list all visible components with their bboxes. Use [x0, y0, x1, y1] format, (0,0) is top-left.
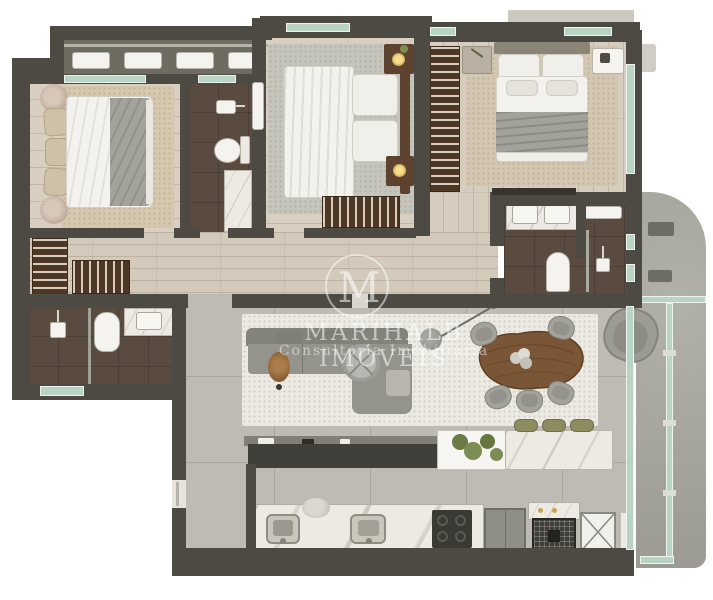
window-icon: [286, 23, 350, 32]
window-icon: [198, 75, 236, 83]
flower-centerpiece-icon: [508, 348, 534, 370]
cooktop-icon: [432, 510, 472, 548]
wall: [28, 228, 144, 238]
window-icon: [626, 234, 635, 250]
bed-2: [284, 66, 354, 198]
kitchen-island: [505, 430, 613, 470]
bed-3-foot: [496, 152, 588, 162]
herb-plant-icon: [464, 442, 482, 460]
bed-3-headboard: [494, 42, 590, 54]
wall-shelf: [252, 82, 264, 130]
service-shaft-icon: [580, 512, 616, 552]
bar-stool-icon: [542, 419, 566, 432]
door-leaf: [176, 482, 179, 506]
railing-post: [663, 350, 676, 356]
glass-partition: [88, 308, 91, 386]
side-stool-icon: [268, 352, 290, 382]
window-icon: [626, 264, 635, 282]
pouf-icon: [40, 196, 68, 224]
exterior-ledge: [508, 10, 634, 22]
glass-railing: [640, 556, 674, 564]
lamp-icon: [392, 53, 405, 66]
door-opening: [188, 294, 232, 308]
window-icon: [64, 75, 146, 83]
slatted-bench-icon: [322, 196, 400, 228]
grill-knob-icon: [538, 508, 543, 513]
shower-icon: [224, 170, 252, 232]
wall: [246, 464, 256, 550]
wall: [490, 192, 504, 246]
washbasin-icon: [136, 312, 162, 330]
slatted-bench-icon: [32, 238, 68, 296]
glass-partition: [586, 230, 589, 292]
dining-chair-icon: [516, 390, 543, 413]
wall: [174, 228, 200, 238]
bed-3-blanket: [496, 112, 588, 154]
toilet-tank: [240, 136, 250, 164]
decor-object-icon: [340, 439, 350, 444]
wall: [414, 26, 430, 236]
herb-plant-icon: [480, 434, 495, 449]
washbasin-icon: [512, 205, 538, 224]
slatted-bench-icon: [72, 260, 130, 294]
wall: [12, 384, 186, 400]
wall: [228, 228, 274, 238]
sink-icon: [266, 514, 300, 544]
glass-railing: [666, 303, 673, 559]
bar-stool-icon: [570, 419, 594, 432]
ac-unit-icon: [72, 52, 110, 69]
wall: [172, 548, 634, 576]
balcony-rail-line: [56, 44, 268, 47]
wall: [576, 204, 586, 258]
tv-panel-icon: [492, 188, 576, 195]
bar-stool-icon: [514, 419, 538, 432]
faucet-icon: [236, 105, 245, 107]
wall: [50, 26, 272, 40]
wall: [12, 58, 30, 308]
refrigerator-icon: [484, 508, 526, 550]
wall: [368, 294, 640, 308]
bed-3-small-pillow: [546, 80, 578, 96]
decor-tray-icon: [258, 438, 274, 444]
wall: [304, 228, 416, 238]
coffee-table-icon: [342, 344, 380, 382]
toilet-icon: [214, 138, 241, 163]
bed-2-pillow: [352, 74, 398, 116]
lamp-icon: [600, 53, 610, 63]
wall: [28, 294, 188, 308]
nightstand-icon: [462, 46, 492, 74]
herb-plant-icon: [490, 448, 503, 461]
floor-lamp-shade-icon: [420, 328, 442, 350]
wall: [172, 294, 186, 480]
window-icon: [564, 27, 612, 36]
stone-bowl-icon: [302, 498, 330, 518]
railing-post: [663, 420, 676, 426]
washbasin-icon: [216, 100, 236, 114]
wall: [180, 84, 190, 236]
glass-door-icon: [40, 386, 84, 396]
planter-bench-icon: [648, 222, 674, 236]
window-wall: [626, 306, 634, 550]
bed-1-sheet-edge: [146, 100, 153, 204]
bed-3-small-pillow: [506, 80, 538, 96]
ac-unit-icon: [124, 52, 162, 69]
toilet-icon: [546, 252, 570, 292]
sink-icon: [350, 514, 386, 544]
grill-knob-icon: [552, 508, 557, 513]
lamp-icon: [393, 164, 406, 177]
vase-icon: [276, 384, 282, 390]
wall: [232, 294, 352, 308]
ac-unit-icon: [176, 52, 214, 69]
plant-icon: [400, 45, 408, 53]
decor-object-icon: [302, 439, 314, 444]
wall-shelf: [584, 206, 622, 219]
washbasin-icon: [544, 205, 570, 224]
shower-head-icon: [50, 322, 66, 338]
glass-railing: [636, 296, 706, 303]
tv-console: [244, 436, 440, 468]
entry-door-opening: [172, 480, 186, 508]
toilet-icon: [94, 312, 120, 352]
slatted-wardrobe-icon: [430, 46, 460, 192]
railing-post: [663, 490, 676, 496]
wall-niche: [352, 294, 368, 308]
floor-plan: M MARIHALB IMÓVEIS Consultoria Imobiliár…: [0, 0, 713, 600]
planter-bench-icon: [648, 270, 672, 282]
window-icon: [430, 27, 456, 36]
bed-1-blanket: [110, 98, 150, 206]
shower-valve-icon: [596, 258, 610, 272]
window-icon: [626, 64, 635, 174]
